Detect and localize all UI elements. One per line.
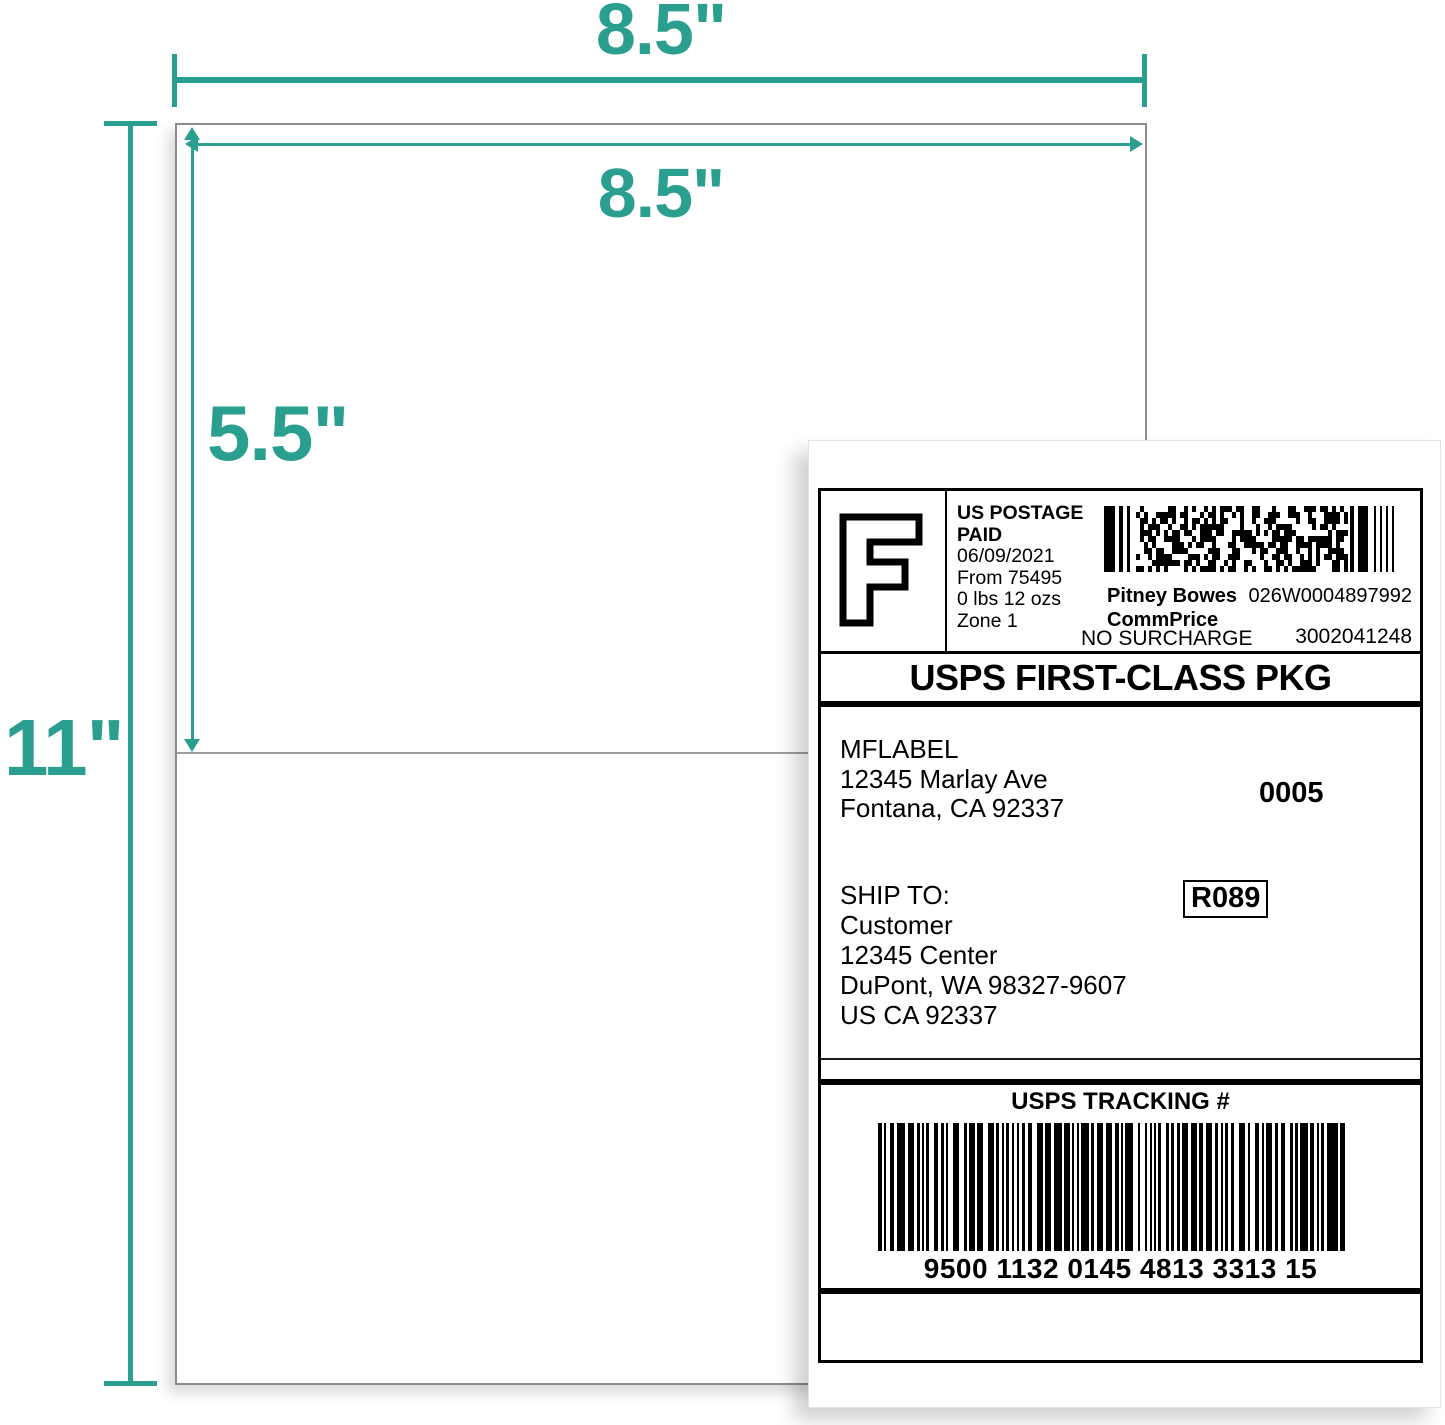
postage-info-block: US POSTAGE PAID 06/09/2021 From 75495 0 … [957,503,1083,632]
recipient-street: 12345 Center [840,940,1127,970]
shipping-label: US POSTAGE PAID 06/09/2021 From 75495 0 … [818,488,1423,1363]
sender-street: 12345 Marlay Ave [840,765,1064,795]
carrier-name: Pitney Bowes [1107,585,1237,608]
recipient-name: Customer [840,910,1127,940]
inner-width-arrowhead-right [1130,136,1143,152]
sheet-height-dimension-line [128,123,133,1384]
tracking-number: 9500 1132 0145 4813 3313 15 [821,1253,1420,1285]
tracking-barcode [878,1123,1345,1251]
shipping-label-card: US POSTAGE PAID 06/09/2021 From 75495 0 … [808,440,1441,1408]
sheet-width-tick-left [172,54,177,107]
inner-width-arrow-line [194,143,1136,146]
sheet-height-label: 11" [4,708,124,788]
tracking-top-rule [821,1079,1420,1085]
recipient-address-block: SHIP TO: Customer 12345 Center DuPont, W… [840,880,1127,1030]
ibi-2d-barcode [1104,506,1397,572]
postage-weight: 0 lbs 12 ozs [957,589,1083,611]
recipient-city: DuPont, WA 98327-9607 [840,970,1127,1000]
sender-city: Fontana, CA 92337 [840,794,1064,824]
tracking-heading: USPS TRACKING # [821,1088,1420,1116]
postage-origin: From 75495 [957,568,1083,590]
label-height-arrowhead-down [184,739,200,752]
sender-address-block: MFLABEL 12345 Marlay Ave Fontana, CA 923… [840,735,1064,824]
label-height-arrow-line [191,136,194,744]
product-diagram: 8.5" 11" 8.5" 5.5" US POSTAGE PAID [0,0,1445,1425]
inner-width-label: 8.5" [481,158,841,228]
address-section-rule [821,1058,1420,1060]
batch-number: 0005 [1259,777,1324,810]
sheet-height-tick-top [104,121,157,126]
meter-id: 026W0004897992 [1249,585,1412,608]
route-code-box: R089 [1183,880,1268,918]
sender-name: MFLABEL [840,735,1064,765]
postage-line2: PAID [957,525,1083,547]
recipient-country: US CA 92337 [840,1000,1127,1030]
postage-line1: US POSTAGE [957,503,1083,525]
label-height-arrowhead-up [184,127,200,140]
service-banner: USPS FIRST-CLASS PKG [821,654,1420,707]
tracking-bottom-rule [821,1288,1420,1294]
ship-to-heading: SHIP TO: [840,880,1127,910]
serial-number: 3002041248 [1295,625,1412,649]
postage-header-section: US POSTAGE PAID 06/09/2021 From 75495 0 … [821,491,1420,654]
header-divider [945,491,947,651]
sheet-height-tick-bottom [104,1381,157,1386]
sheet-width-dimension-line [175,77,1145,83]
label-height-label: 5.5" [207,394,348,472]
postage-zone: Zone 1 [957,611,1083,633]
sheet-width-tick-right [1142,54,1147,107]
surcharge-note: NO SURCHARGE [1081,627,1253,651]
postage-date: 06/09/2021 [957,546,1083,568]
sheet-width-label: 8.5" [481,0,841,66]
fim-f-logo [837,511,925,629]
